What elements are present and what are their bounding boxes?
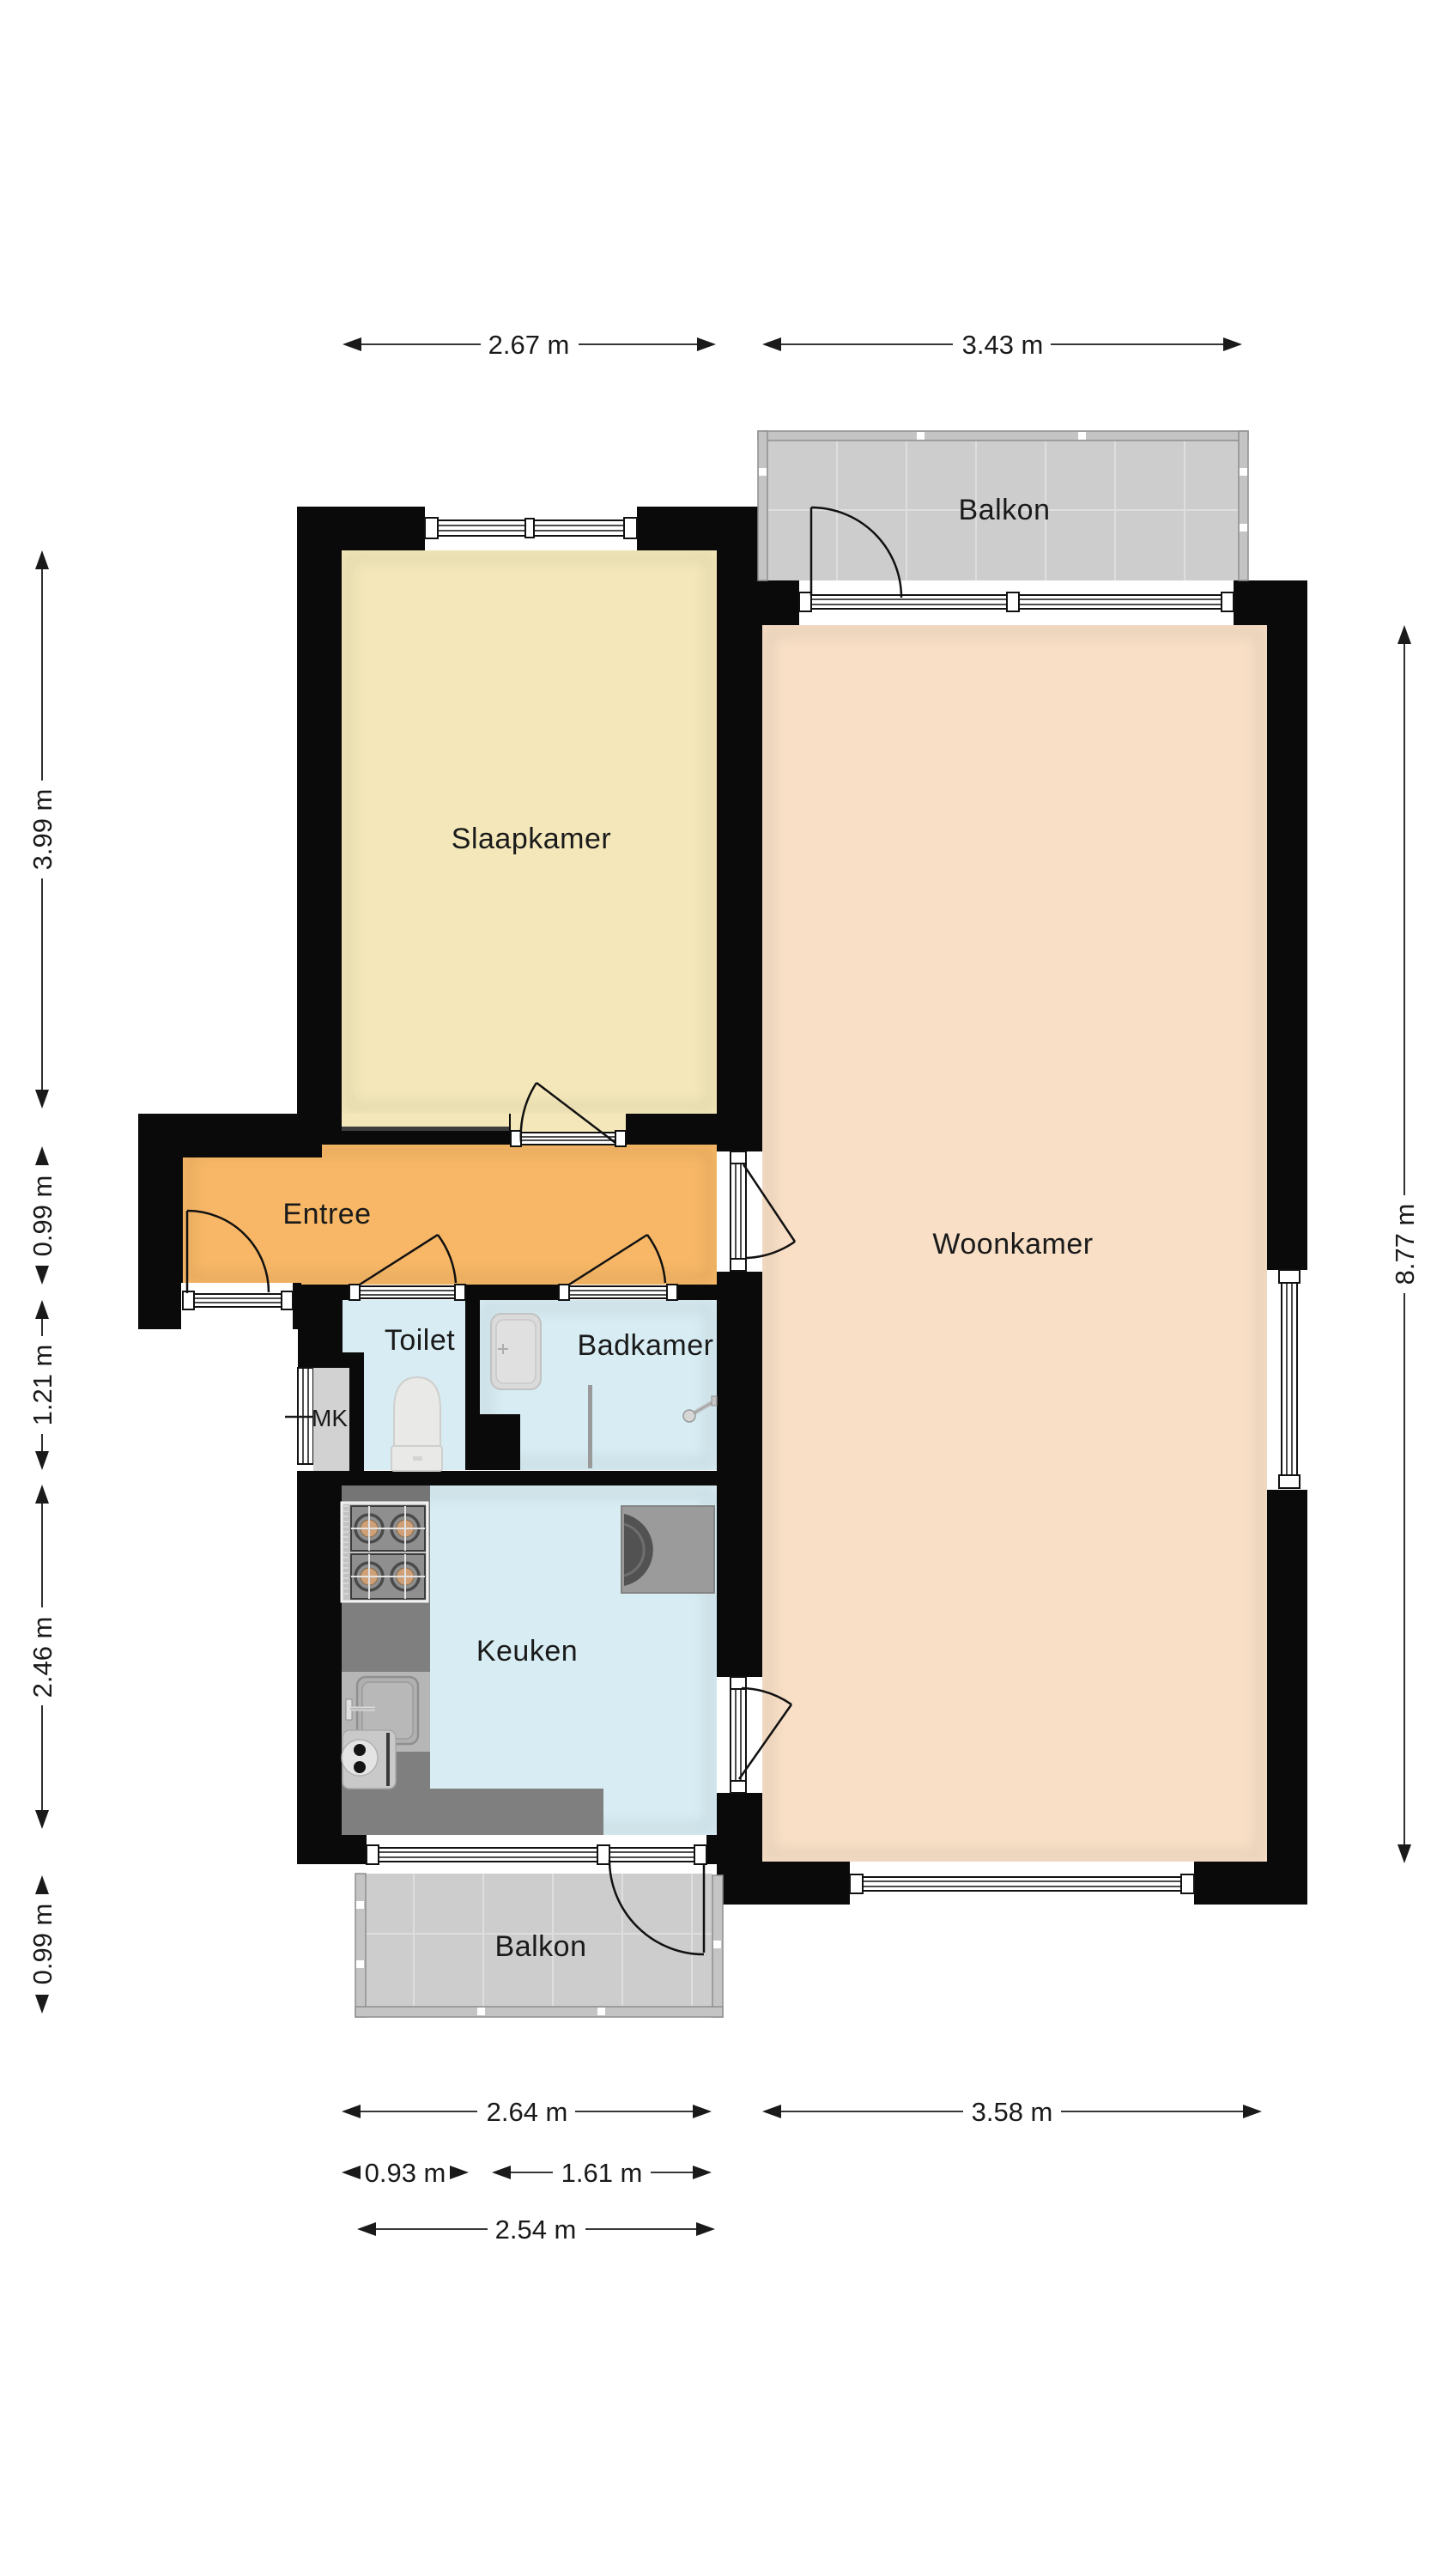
svg-text:1.21 m: 1.21 m	[27, 1345, 58, 1426]
svg-text:Balkon: Balkon	[495, 1930, 587, 1963]
svg-text:3.99 m: 3.99 m	[27, 789, 58, 871]
svg-text:Balkon: Balkon	[959, 494, 1051, 526]
svg-text:2.67 m: 2.67 m	[488, 330, 570, 360]
svg-text:Woonkamer: Woonkamer	[932, 1228, 1093, 1261]
svg-text:0.99 m: 0.99 m	[27, 1904, 58, 1985]
svg-text:0.99 m: 0.99 m	[27, 1176, 58, 1257]
svg-text:2.64 m: 2.64 m	[487, 2097, 568, 2127]
svg-text:3.58 m: 3.58 m	[972, 2097, 1053, 2127]
svg-text:2.46 m: 2.46 m	[27, 1617, 58, 1698]
svg-text:MK: MK	[312, 1405, 348, 1431]
svg-text:1.61 m: 1.61 m	[561, 2158, 643, 2188]
svg-text:Toilet: Toilet	[385, 1324, 455, 1357]
svg-text:3.43 m: 3.43 m	[962, 330, 1044, 360]
svg-text:Badkamer: Badkamer	[578, 1329, 714, 1362]
svg-text:Entree: Entree	[282, 1198, 371, 1230]
svg-text:Slaapkamer: Slaapkamer	[452, 823, 611, 855]
svg-text:0.93 m: 0.93 m	[365, 2158, 446, 2188]
svg-text:8.77 m: 8.77 m	[1390, 1204, 1420, 1285]
svg-text:2.54 m: 2.54 m	[495, 2215, 577, 2245]
svg-text:Keuken: Keuken	[476, 1635, 578, 1668]
